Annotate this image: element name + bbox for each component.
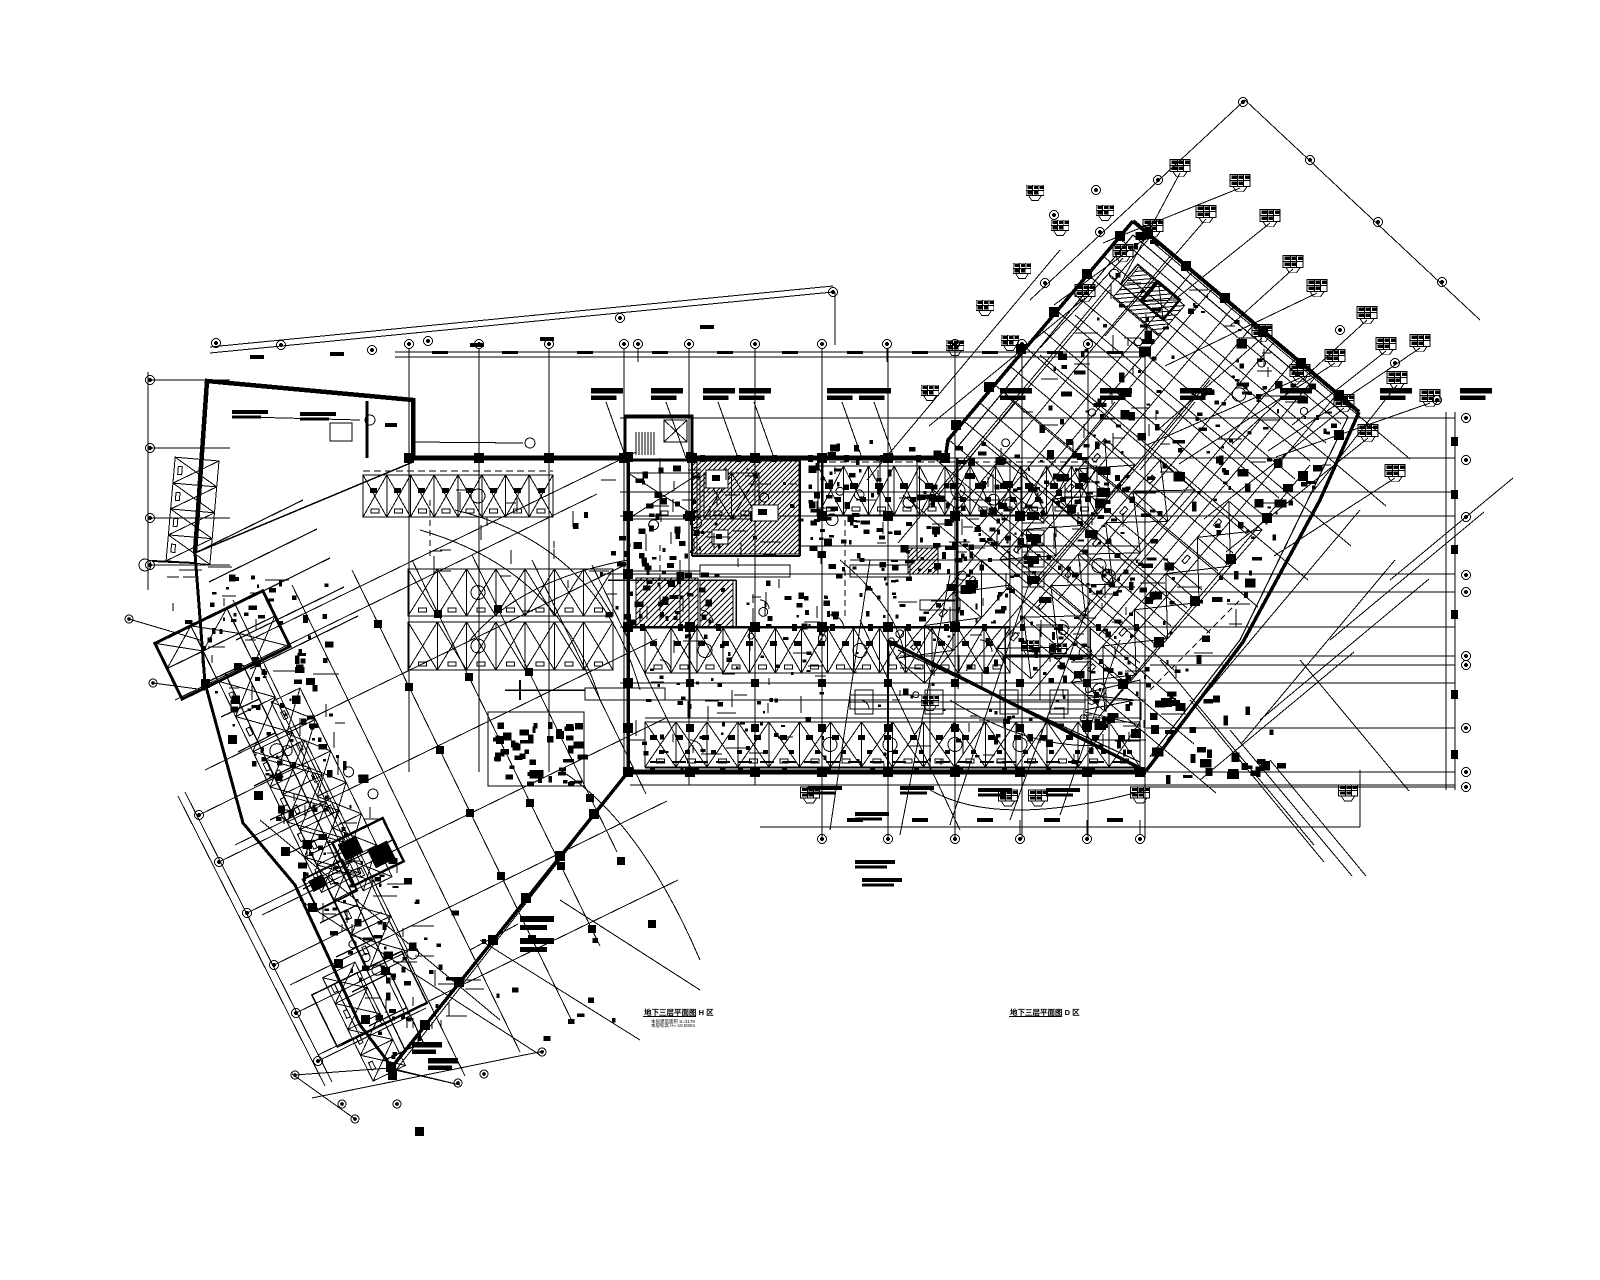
- svg-text:地下三层平面图 D 区: 地下三层平面图 D 区: [1010, 1007, 1080, 1017]
- svg-text:地下三层平面图 H 区: 地下三层平面图 H 区: [644, 1007, 714, 1017]
- svg-text:本层标高 H=-10.500m: 本层标高 H=-10.500m: [651, 1022, 695, 1029]
